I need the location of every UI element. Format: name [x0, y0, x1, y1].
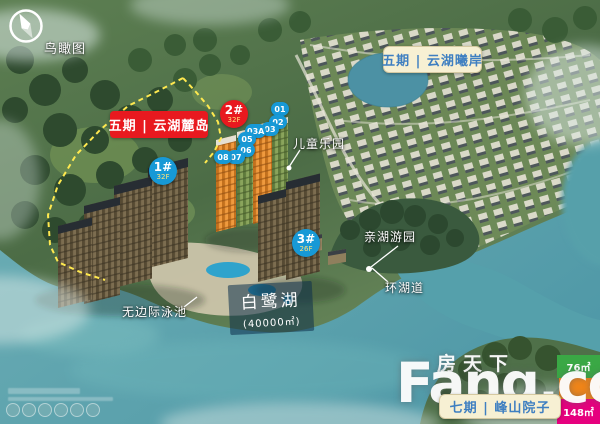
phase-label-yunhu-ludao: 五期 | 云湖麓岛 [110, 111, 208, 138]
lake-label: 白鹭湖 (40000㎡) [228, 281, 315, 335]
compass-icon [6, 6, 46, 50]
toolbar-icon-crop[interactable] [54, 403, 68, 417]
poi-label-lake-road: 环湖道 [385, 279, 424, 296]
building-badge-3: 3# 26F [292, 229, 320, 257]
building-2-number: 2# [225, 104, 243, 116]
lake-name: 白鹭湖 [240, 285, 301, 313]
masterplan-stage: 鸟瞰图 五期 | 云湖麓岛 五期 | 云湖曦岸 七期 | 峰山院子 1# 32F… [0, 0, 600, 424]
caption-bar-1 [8, 388, 80, 394]
unit-badge-08: 08 [214, 150, 232, 164]
toolbar-icon-search[interactable] [70, 403, 84, 417]
toolbar-icon-info[interactable] [86, 403, 100, 417]
unit-badge-01: 01 [271, 102, 289, 116]
building-1-number: 1# [154, 161, 172, 173]
toolbar-icon-pencil[interactable] [38, 403, 52, 417]
building-1-floors: 32F [157, 174, 170, 181]
building-3-floors: 26F [300, 246, 313, 253]
caption-bar-2 [8, 397, 113, 401]
lake-area: (40000㎡) [241, 312, 302, 330]
playground-marker-dot [287, 166, 292, 171]
building-badge-1: 1# 32F [149, 157, 177, 185]
toolbar-icon-forward[interactable] [22, 403, 36, 417]
view-type-label: 鸟瞰图 [44, 38, 86, 57]
poi-label-lake-garden: 亲湖游园 [364, 228, 416, 245]
poi-label-infinity-pool: 无边际泳池 [122, 303, 187, 320]
building-badge-2: 2# 32F [220, 100, 248, 128]
phase-label-yunhu-xian: 五期 | 云湖曦岸 [383, 46, 482, 73]
building-2-floors: 32F [228, 117, 241, 124]
lake-garden-marker-dot [366, 266, 372, 272]
toolbar-icon-back[interactable] [6, 403, 20, 417]
building-3-number: 3# [297, 233, 315, 245]
poi-label-playground: 儿童乐园 [293, 135, 345, 152]
phase-label-fengshan-yuanzi: 七期 | 峰山院子 [439, 394, 561, 419]
